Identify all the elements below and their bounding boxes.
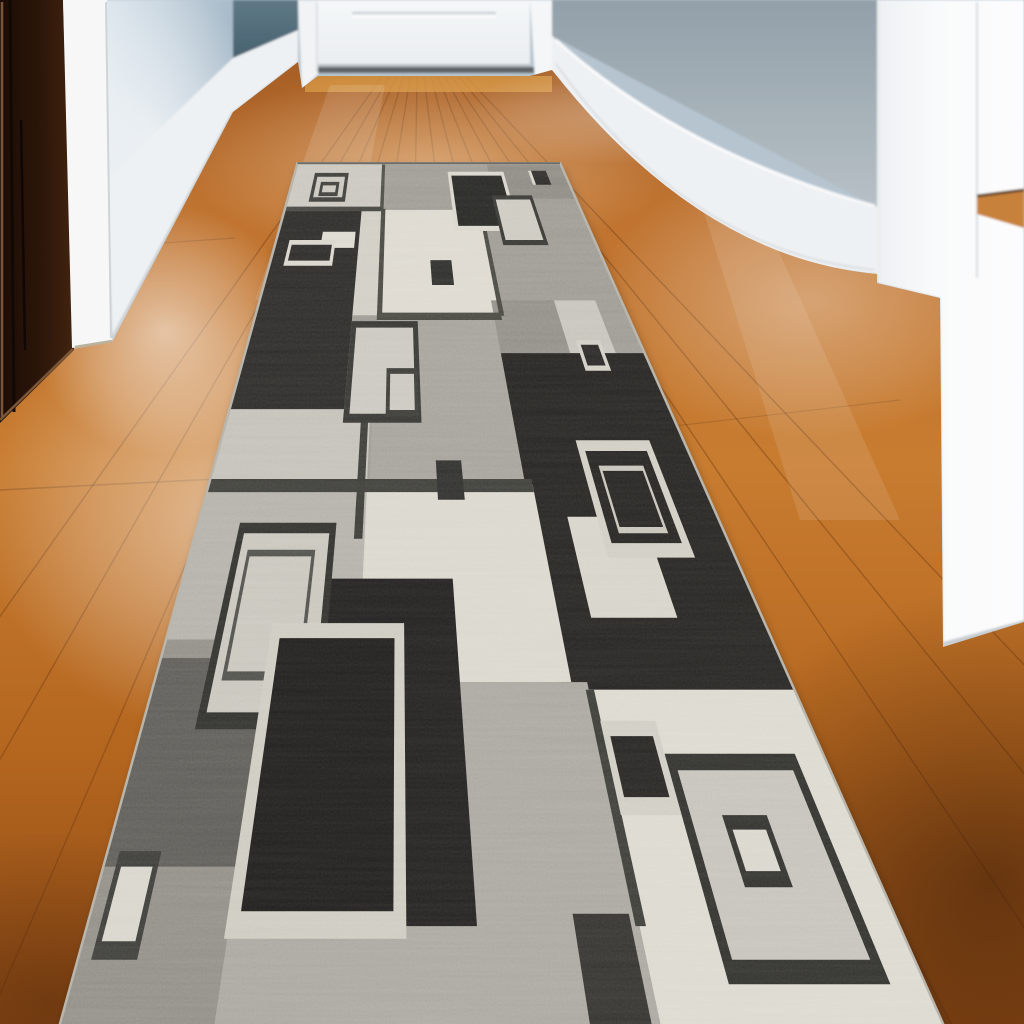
far-door-gap bbox=[316, 67, 534, 73]
hallway-photo bbox=[0, 0, 1024, 1024]
far-door-slab bbox=[318, 0, 530, 70]
scene-canvas bbox=[0, 0, 1024, 1024]
